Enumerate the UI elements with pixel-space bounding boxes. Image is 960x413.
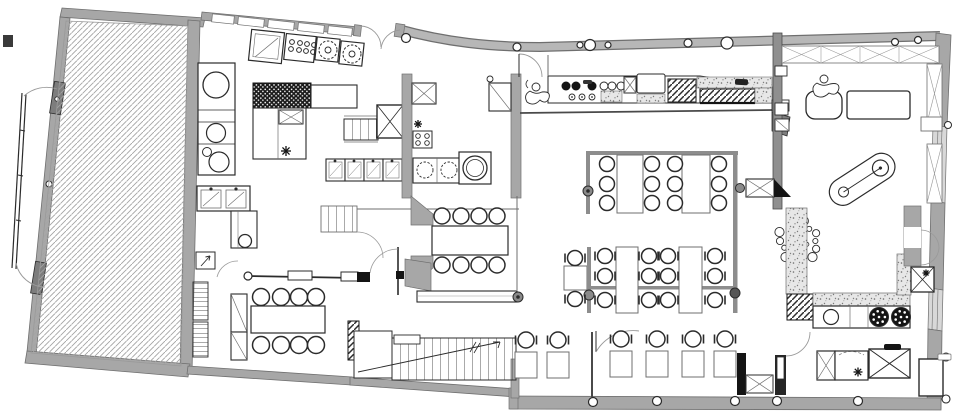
armchair	[611, 331, 632, 347]
armchair	[548, 332, 569, 348]
chair	[668, 177, 683, 192]
seat-table	[610, 351, 632, 377]
stock-kettle	[459, 152, 491, 184]
service-counter	[417, 291, 517, 302]
chair	[600, 157, 615, 172]
chair	[712, 177, 727, 192]
chair	[489, 257, 505, 273]
interior-wall	[511, 74, 521, 198]
armchair	[565, 292, 585, 307]
chair	[600, 177, 615, 192]
rail-knob	[730, 288, 740, 298]
wall-column	[942, 395, 950, 403]
door-swing-arc	[519, 54, 542, 77]
wall-post	[357, 272, 370, 282]
counter-stone	[601, 91, 622, 102]
chair	[645, 177, 660, 192]
undercounter-fridge	[668, 79, 696, 102]
wall-column	[773, 397, 782, 406]
chair	[434, 208, 450, 224]
seat-table	[714, 351, 736, 377]
salamander	[735, 79, 748, 86]
seat-table	[515, 352, 537, 378]
armchair	[516, 332, 537, 348]
kitchen-southeast	[775, 206, 951, 403]
chair	[668, 157, 683, 172]
chair	[434, 257, 450, 273]
chair	[308, 337, 325, 354]
chair	[453, 208, 469, 224]
chair	[600, 196, 615, 211]
equipment-handle	[884, 344, 901, 350]
wall-bottom-right	[510, 396, 941, 410]
service-wedge	[405, 259, 431, 291]
chair	[471, 208, 487, 224]
person-figure-head	[820, 75, 828, 83]
faucet-dot	[391, 160, 394, 163]
faucet-dot	[209, 187, 212, 190]
counter-stone	[637, 94, 665, 103]
seat-table	[646, 351, 668, 377]
facade-column	[577, 42, 583, 48]
armchair	[705, 249, 725, 264]
chair	[712, 196, 727, 211]
chair	[291, 337, 308, 354]
exterior-column	[3, 35, 13, 47]
wall-column	[589, 398, 598, 407]
chair	[253, 337, 270, 354]
rail-knob-dot	[516, 295, 520, 299]
wall-column	[653, 397, 662, 406]
chair	[253, 289, 270, 306]
dining-west	[321, 196, 523, 302]
window-sill	[921, 117, 942, 131]
floor-drain	[854, 368, 863, 377]
seat-table	[682, 351, 704, 377]
rail-knob	[736, 184, 745, 193]
dining-table	[679, 247, 702, 313]
sink-round	[824, 310, 839, 325]
chair	[712, 157, 727, 172]
undercounter-fridge	[700, 89, 755, 103]
stair-landing	[354, 331, 392, 378]
facade-column	[684, 39, 692, 47]
wall-bottom-left	[187, 366, 352, 385]
island-counter	[311, 85, 357, 108]
armchair	[595, 249, 615, 264]
bar-counter	[520, 55, 790, 136]
tap-dot	[581, 96, 583, 98]
floor-drain	[414, 120, 422, 128]
dining-table	[432, 226, 508, 255]
armchair	[595, 269, 615, 284]
lounge-room	[773, 33, 952, 211]
armchair	[705, 293, 725, 308]
bar-front-line	[520, 110, 774, 113]
dining-table	[617, 155, 643, 213]
radiator	[288, 271, 312, 280]
chair	[453, 257, 469, 273]
armchair	[658, 293, 678, 308]
seat-table	[547, 352, 569, 378]
tall-cabinet	[919, 359, 943, 396]
armchair	[639, 293, 659, 308]
wall-vent	[938, 354, 951, 360]
range-4-burner	[413, 131, 432, 148]
armchair	[639, 269, 659, 284]
window-right-lower	[928, 288, 943, 331]
chair	[645, 196, 660, 211]
facade-column	[892, 39, 899, 46]
espresso-group	[572, 82, 581, 91]
chair	[645, 157, 660, 172]
facade-column	[605, 42, 611, 48]
service-tray	[637, 74, 665, 93]
faucet-dot	[334, 160, 337, 163]
hinge-dot	[487, 76, 493, 82]
service-stair	[193, 282, 208, 320]
dining-southwest	[217, 261, 370, 360]
banquette-lower	[564, 247, 740, 313]
ramp-stair	[321, 206, 357, 232]
door-swing-arc	[370, 249, 398, 273]
counter-stone-vertical	[786, 208, 807, 294]
armchair	[639, 249, 659, 264]
armchair	[715, 331, 736, 347]
radiator	[341, 272, 358, 281]
wall-column	[731, 397, 740, 406]
stove-pair	[413, 158, 460, 183]
door-swing-arc	[357, 232, 383, 258]
wall-cabinet	[775, 66, 787, 76]
facade-column	[721, 37, 733, 49]
stair-up	[344, 119, 378, 140]
chair	[489, 208, 505, 224]
chair	[273, 337, 290, 354]
floor-drain	[923, 270, 930, 277]
counter-stone	[813, 293, 910, 306]
chair	[471, 257, 487, 273]
banquette-rail	[586, 155, 590, 214]
armchair	[705, 269, 725, 284]
armchair	[658, 249, 678, 264]
armchair	[647, 331, 668, 347]
dining-table	[616, 247, 638, 313]
banquette-rail	[591, 286, 737, 290]
hatched-cabinet	[787, 294, 813, 320]
chair	[668, 196, 683, 211]
curved-storefront-band	[398, 29, 940, 47]
rail-knob	[244, 272, 252, 280]
armchair	[683, 331, 704, 347]
facade-column	[402, 34, 411, 43]
side-table	[564, 266, 587, 290]
door-swing-arc	[786, 332, 810, 356]
floor-drain	[281, 146, 291, 156]
mullion-tick	[18, 175, 23, 176]
faucet-dot	[372, 160, 375, 163]
door-stop	[396, 271, 404, 279]
door-leaf	[777, 357, 784, 379]
lounge-table	[847, 91, 910, 119]
wall-cabinet	[775, 103, 788, 115]
chair	[308, 289, 325, 306]
faucet-dot	[353, 160, 356, 163]
shelf-band	[782, 46, 939, 63]
espresso-group	[562, 82, 571, 91]
chair	[291, 289, 308, 306]
facade-column	[513, 43, 521, 51]
tap-dot	[571, 96, 573, 98]
facade-column	[915, 37, 922, 44]
barista-figure-arm	[526, 80, 528, 88]
closet-door-gap	[904, 227, 921, 248]
facade-column	[585, 40, 596, 51]
window-seating	[515, 331, 810, 395]
wok-burner	[870, 308, 889, 327]
door-jamb	[411, 196, 433, 225]
grinder	[583, 80, 592, 84]
wok-burner	[892, 308, 911, 327]
service-stair	[193, 322, 208, 357]
floor-plan	[0, 0, 960, 413]
stair-start-step	[394, 335, 420, 344]
barista-figure-body	[526, 91, 550, 104]
banquette-rail	[587, 247, 591, 313]
banquette-rail	[586, 151, 738, 155]
armchair	[595, 293, 615, 308]
faucet-dot	[234, 187, 237, 190]
wall-dot	[945, 122, 952, 129]
counter-stone	[697, 77, 772, 88]
tap-dot	[591, 96, 593, 98]
barista-figure-head	[532, 83, 540, 91]
wall-post	[737, 353, 746, 395]
prep-table	[835, 351, 868, 380]
counter-stone	[755, 88, 772, 103]
armchair	[658, 269, 678, 284]
door-swing-arc	[217, 261, 238, 277]
dining-table	[682, 155, 710, 213]
rail-knob-dot	[586, 189, 590, 193]
interior-wall	[402, 74, 412, 198]
char-grill	[253, 83, 311, 108]
chair	[273, 289, 290, 306]
floor-plan-drawing	[0, 0, 960, 413]
mullion-tick	[16, 220, 21, 221]
wall-column	[854, 397, 863, 406]
armchair	[565, 251, 585, 266]
dining-table	[251, 306, 325, 333]
station-wedge	[774, 179, 791, 197]
office-desk	[231, 211, 257, 248]
